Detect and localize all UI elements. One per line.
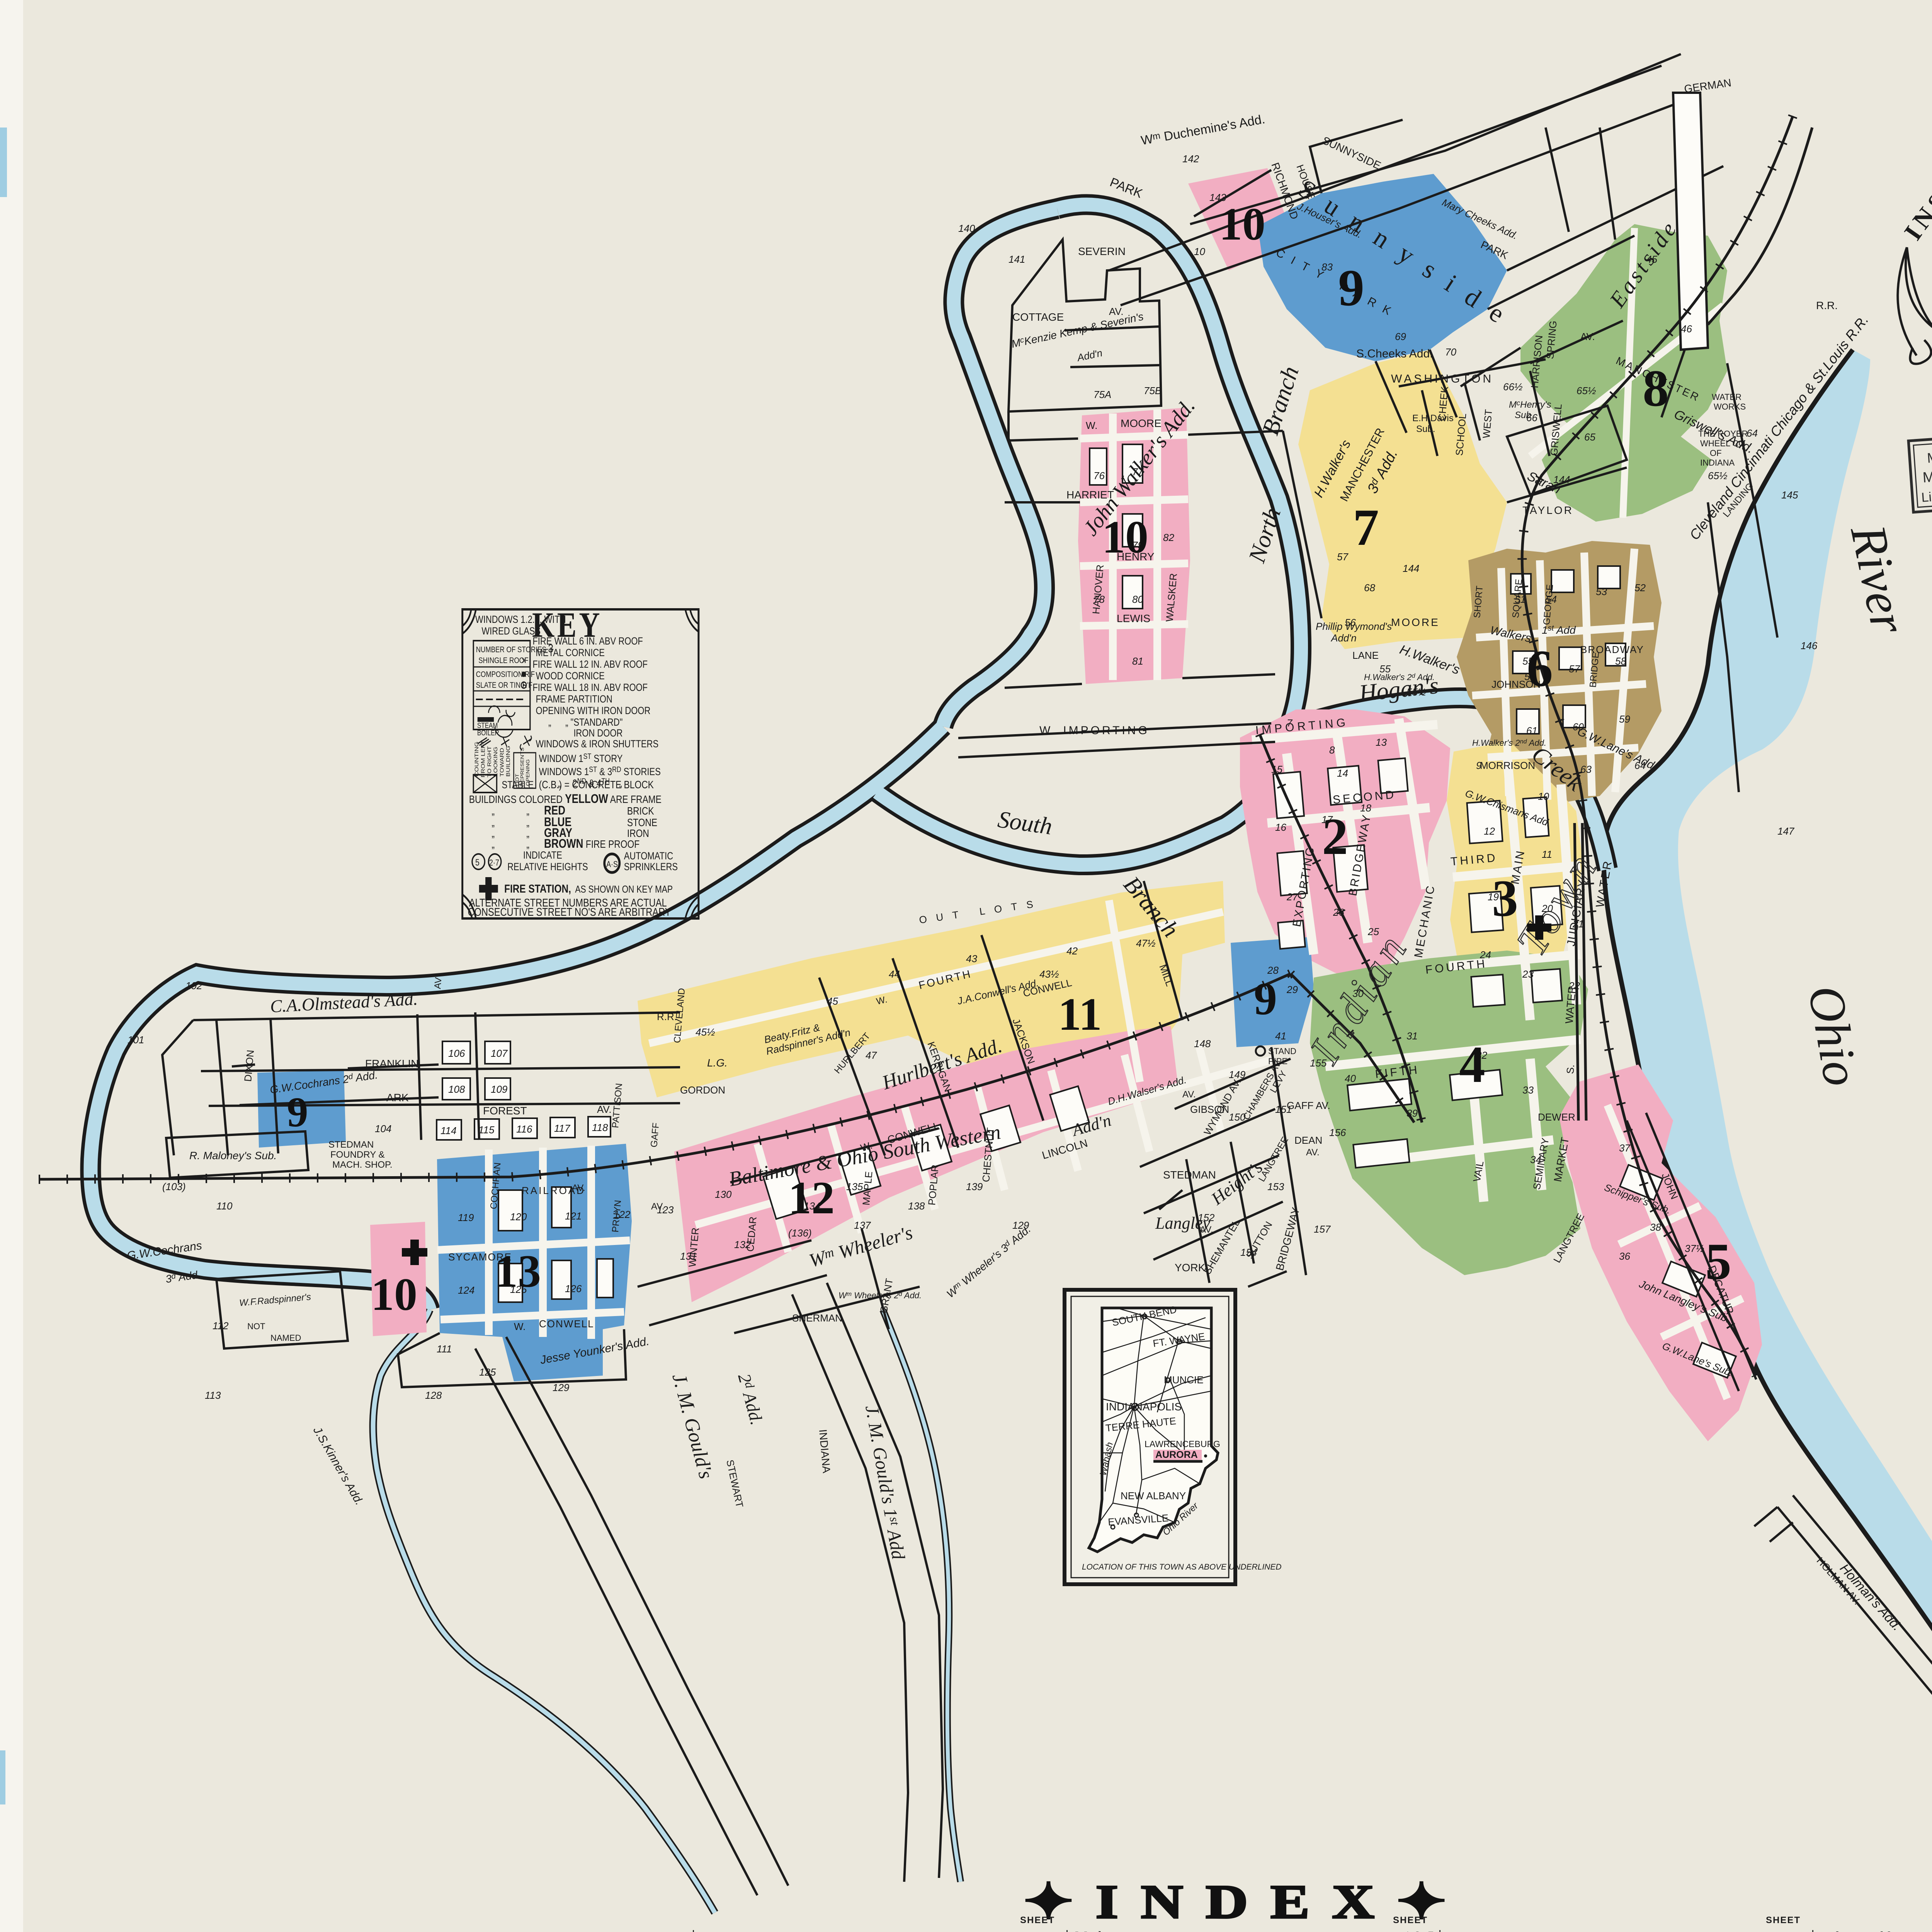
- svg-text:78: 78: [1094, 594, 1105, 605]
- svg-text:FIRE STATION,: FIRE STATION,: [504, 882, 571, 895]
- svg-text:65½: 65½: [1708, 470, 1728, 481]
- svg-text:THE ROYER: THE ROYER: [1698, 429, 1748, 439]
- svg-text:46: 46: [1681, 323, 1692, 335]
- svg-text:106: 106: [448, 1048, 465, 1059]
- svg-text:129: 129: [1012, 1219, 1029, 1231]
- svg-text:38: 38: [1650, 1221, 1661, 1233]
- svg-text:82: 82: [1163, 532, 1174, 543]
- svg-text:W.: W.: [514, 1321, 526, 1332]
- svg-text:43: 43: [966, 953, 977, 964]
- svg-text:AV: AV: [432, 977, 444, 989]
- svg-text:FIRE WALL 18 IN. ABV ROOF: FIRE WALL 18 IN. ABV ROOF: [532, 682, 648, 694]
- svg-text:75B: 75B: [1144, 385, 1162, 396]
- svg-text:AV.: AV.: [1200, 1225, 1213, 1235]
- svg-text:FROM LEFT: FROM LEFT: [480, 740, 486, 777]
- svg-text:1st Add: 1st Add: [1542, 624, 1576, 636]
- svg-text:BUILDING: BUILDING: [505, 746, 511, 777]
- svg-text:64: 64: [1634, 760, 1646, 771]
- svg-text:GIBSON: GIBSON: [1190, 1104, 1229, 1115]
- svg-text:INDIANAPOLIS: INDIANAPOLIS: [1106, 1401, 1182, 1413]
- svg-text:SEVERIN: SEVERIN: [1078, 245, 1126, 257]
- svg-text:WOOD CORNICE: WOOD CORNICE: [536, 670, 605, 682]
- svg-text:14: 14: [1337, 767, 1348, 779]
- svg-text:STAND: STAND: [1268, 1046, 1296, 1056]
- svg-text:60: 60: [1573, 721, 1584, 733]
- svg-text:141: 141: [1009, 253, 1025, 265]
- svg-text:AURORA: AURORA: [1155, 1449, 1198, 1460]
- svg-text:MOORE: MOORE: [1391, 616, 1440, 628]
- svg-text:FOUNDRY &: FOUNDRY &: [330, 1150, 384, 1160]
- svg-text:144: 144: [1403, 563, 1419, 574]
- svg-text:TOWARD: TOWARD: [499, 748, 505, 777]
- svg-text:23: 23: [1522, 968, 1534, 980]
- svg-text:STEDMAN: STEDMAN: [328, 1139, 374, 1150]
- svg-text:25: 25: [1367, 926, 1379, 937]
- svg-text:137: 137: [854, 1219, 871, 1231]
- svg-text:65: 65: [1584, 431, 1595, 443]
- svg-text:(C.B.) = CONCRETE BLOCK: (C.B.) = CONCRETE BLOCK: [539, 779, 654, 791]
- svg-text:TO RIGHT: TO RIGHT: [486, 746, 492, 777]
- svg-text:39: 39: [1406, 1107, 1418, 1119]
- svg-text:80: 80: [1132, 594, 1143, 605]
- svg-text:S.Cheeks Add.: S.Cheeks Add.: [1356, 347, 1433, 360]
- svg-text:142: 142: [1182, 153, 1199, 165]
- svg-text:MORRISON: MORRISON: [1480, 760, 1535, 771]
- svg-text:×: ×: [522, 655, 526, 667]
- svg-text:59: 59: [1619, 713, 1630, 725]
- svg-text:12: 12: [788, 1172, 835, 1223]
- svg-text:66½: 66½: [1503, 381, 1523, 393]
- svg-text:130: 130: [715, 1189, 732, 1200]
- svg-text:150: 150: [1229, 1111, 1246, 1123]
- svg-text:L.G.: L.G.: [707, 1057, 728, 1069]
- svg-text:132: 132: [734, 1239, 751, 1250]
- svg-text:52: 52: [1634, 582, 1646, 594]
- svg-text:7: 7: [1353, 499, 1379, 556]
- svg-text:W. IMPORTING: W. IMPORTING: [1039, 724, 1150, 737]
- svg-text:(136): (136): [788, 1227, 812, 1239]
- svg-text:13: 13: [495, 1245, 541, 1297]
- svg-text:125: 125: [479, 1366, 496, 1378]
- svg-text:MACH. SHOP.: MACH. SHOP.: [332, 1160, 393, 1170]
- svg-text:LOCATION OF THIS TOWN AS ABOVE: LOCATION OF THIS TOWN AS ABOVE UNDERLINE…: [1082, 1563, 1282, 1571]
- svg-text:53: 53: [1596, 586, 1607, 597]
- svg-text:101: 101: [128, 1034, 144, 1046]
- svg-text:WINDOWS 1.2.3. WITH: WINDOWS 1.2.3. WITH: [475, 614, 566, 626]
- svg-text:44: 44: [889, 968, 900, 980]
- svg-text:109: 109: [491, 1083, 507, 1095]
- svg-text:43½: 43½: [1039, 968, 1059, 980]
- svg-text:DEWER: DEWER: [1538, 1111, 1575, 1123]
- svg-text:41: 41: [1275, 1030, 1286, 1042]
- svg-text:OF: OF: [1710, 448, 1722, 458]
- svg-text:YORK: YORK: [1175, 1262, 1206, 1274]
- svg-text:WHEEL CO: WHEEL CO: [1700, 439, 1745, 448]
- svg-text:66: 66: [1526, 412, 1537, 423]
- svg-text:54: 54: [1546, 594, 1557, 605]
- svg-text:40: 40: [1345, 1073, 1356, 1084]
- svg-text:75A: 75A: [1094, 389, 1111, 400]
- svg-text:34: 34: [1530, 1154, 1541, 1165]
- svg-text:157: 157: [1314, 1223, 1331, 1235]
- svg-text:AV.: AV.: [1182, 1089, 1196, 1100]
- svg-text:57: 57: [1569, 663, 1580, 675]
- svg-text:135: 135: [846, 1181, 863, 1192]
- svg-text:153: 153: [1267, 1181, 1284, 1192]
- svg-text:68: 68: [1364, 582, 1375, 594]
- svg-text:ARK: ARK: [386, 1092, 409, 1104]
- svg-text:131: 131: [680, 1250, 697, 1262]
- svg-text:5: 5: [475, 857, 480, 867]
- svg-text:FRAME PARTITION: FRAME PARTITION: [536, 694, 612, 705]
- svg-text:116: 116: [516, 1123, 532, 1135]
- svg-text:10: 10: [1102, 511, 1148, 563]
- svg-text:Sub.: Sub.: [1416, 424, 1435, 434]
- svg-text:156: 156: [1329, 1127, 1346, 1138]
- svg-text:112: 112: [213, 1320, 229, 1332]
- svg-text:114: 114: [440, 1125, 456, 1136]
- svg-text:140: 140: [958, 223, 975, 234]
- svg-text:9: 9: [1476, 760, 1481, 771]
- svg-text:SHINGLE ROOF: SHINGLE ROOF: [478, 656, 528, 665]
- svg-text:57: 57: [1337, 551, 1349, 563]
- svg-text:„ „ "STANDARD": „ „ "STANDARD": [548, 717, 622, 728]
- svg-text:81: 81: [1132, 655, 1143, 667]
- svg-text:69: 69: [1395, 331, 1406, 342]
- svg-text:WORKS: WORKS: [1714, 402, 1746, 412]
- svg-text:151: 151: [1275, 1104, 1292, 1115]
- svg-text:29: 29: [1286, 984, 1298, 995]
- svg-text:122: 122: [614, 1209, 631, 1220]
- svg-text:LEWIS: LEWIS: [1117, 612, 1150, 624]
- svg-text:76: 76: [1094, 470, 1105, 481]
- svg-text:37½: 37½: [1685, 1243, 1704, 1254]
- svg-text:9: 9: [1254, 973, 1277, 1024]
- svg-text:BRICK: BRICK: [627, 805, 654, 817]
- svg-text:13: 13: [1376, 736, 1387, 748]
- svg-text:27: 27: [1286, 891, 1298, 903]
- svg-text:GAFF AV.: GAFF AV.: [1287, 1100, 1330, 1111]
- svg-text:FOREST: FOREST: [483, 1105, 527, 1117]
- svg-text:154: 154: [1240, 1247, 1257, 1258]
- svg-text:2·7: 2·7: [489, 858, 499, 867]
- svg-text:65½: 65½: [1577, 385, 1596, 396]
- svg-text:SHERMAN: SHERMAN: [792, 1312, 842, 1324]
- svg-text:12: 12: [1484, 825, 1495, 837]
- svg-text:9: 9: [287, 1088, 308, 1136]
- svg-text:8: 8: [1329, 744, 1335, 756]
- svg-text:149: 149: [1229, 1069, 1245, 1080]
- svg-text:R.R.: R.R.: [1816, 299, 1838, 311]
- svg-text:119: 119: [458, 1212, 474, 1223]
- svg-text:10: 10: [1219, 198, 1265, 250]
- svg-text:124: 124: [458, 1284, 474, 1296]
- svg-text:24: 24: [1480, 949, 1491, 961]
- svg-text:H.Walker's 2nd Add.: H.Walker's 2nd Add.: [1472, 738, 1546, 748]
- svg-text:SPRINKLERS: SPRINKLERS: [624, 861, 678, 873]
- svg-text:47½: 47½: [1136, 937, 1156, 949]
- svg-text:45: 45: [827, 995, 838, 1007]
- svg-text:PIPE: PIPE: [1268, 1056, 1287, 1066]
- svg-text:42: 42: [1066, 945, 1078, 957]
- svg-text:145: 145: [1781, 489, 1798, 501]
- svg-text:(103): (103): [162, 1181, 186, 1192]
- svg-text:139: 139: [966, 1181, 983, 1192]
- svg-text:GORDON: GORDON: [680, 1084, 725, 1096]
- svg-text:113: 113: [205, 1389, 221, 1401]
- svg-text:3: 3: [1492, 870, 1518, 927]
- svg-text:117: 117: [554, 1122, 571, 1134]
- svg-text:H.Walker's 2d Add.: H.Walker's 2d Add.: [1364, 672, 1435, 682]
- svg-text:9: 9: [1338, 259, 1364, 317]
- svg-text:CONWELL: CONWELL: [539, 1318, 594, 1330]
- svg-text:AS SHOWN ON KEY MAP: AS SHOWN ON KEY MAP: [575, 884, 673, 895]
- svg-text:AUTOMATIC: AUTOMATIC: [624, 850, 673, 862]
- svg-text:8: 8: [1643, 360, 1669, 417]
- svg-text:123: 123: [657, 1204, 674, 1216]
- svg-text:A·S: A·S: [606, 860, 618, 869]
- svg-text:CONSECUTIVE STREET NO'S ARE AR: CONSECUTIVE STREET NO'S ARE ARBITRARY: [468, 906, 671, 918]
- svg-text:4: 4: [1459, 1036, 1485, 1094]
- svg-text:AV.: AV.: [572, 1183, 585, 1193]
- svg-text:S.: S.: [1564, 1064, 1577, 1074]
- svg-text:IRON DOOR: IRON DOOR: [573, 728, 622, 739]
- svg-text:5: 5: [1705, 1233, 1731, 1291]
- svg-text:10: 10: [371, 1269, 417, 1320]
- svg-text:7: 7: [1287, 717, 1293, 729]
- svg-text:51: 51: [1515, 594, 1526, 605]
- svg-text:10: 10: [1538, 791, 1549, 802]
- svg-text:20: 20: [1541, 903, 1553, 914]
- svg-text:NOT: NOT: [247, 1321, 265, 1331]
- svg-text:STONE: STONE: [627, 817, 657, 829]
- svg-text:111: 111: [437, 1343, 452, 1355]
- svg-text:NEW ALBANY: NEW ALBANY: [1121, 1490, 1186, 1502]
- svg-text:47: 47: [866, 1049, 877, 1061]
- svg-text:45: 45: [1646, 253, 1657, 265]
- svg-text:126: 126: [565, 1283, 582, 1294]
- svg-text:70: 70: [1445, 346, 1456, 358]
- svg-text:61: 61: [1526, 725, 1537, 736]
- svg-text:26: 26: [1333, 906, 1344, 918]
- svg-text:WASHINGTON: WASHINGTON: [1391, 372, 1493, 385]
- svg-text:83: 83: [1321, 261, 1333, 273]
- svg-text:AV.: AV.: [597, 1104, 612, 1115]
- svg-text:104: 104: [375, 1123, 391, 1134]
- svg-text:110: 110: [216, 1200, 233, 1212]
- svg-text:NAMED: NAMED: [270, 1333, 301, 1343]
- svg-text:„ „ BROWN FIR: „ „ BROWN FIRE PROOF: [492, 837, 639, 851]
- svg-text:WINDOW 1ST STORY: WINDOW 1ST STORY: [539, 752, 623, 764]
- svg-text:2: 2: [1322, 808, 1348, 866]
- svg-text:33: 33: [1522, 1084, 1534, 1096]
- svg-text:56: 56: [1345, 617, 1356, 628]
- svg-text:31: 31: [1406, 1030, 1418, 1042]
- svg-text:77: 77: [1132, 466, 1144, 478]
- svg-text:138: 138: [908, 1200, 925, 1212]
- svg-text:DEAN: DEAN: [1294, 1134, 1322, 1146]
- svg-text:120: 120: [510, 1211, 527, 1223]
- svg-text:30: 30: [1352, 988, 1364, 999]
- svg-text:37: 37: [1619, 1142, 1631, 1154]
- svg-text:16: 16: [1275, 821, 1286, 833]
- svg-text:63: 63: [1580, 764, 1592, 775]
- svg-text:11: 11: [1058, 988, 1102, 1040]
- svg-text:INDIANA: INDIANA: [1700, 458, 1735, 468]
- svg-text:INDICATE: INDICATE: [523, 850, 562, 861]
- svg-text:147: 147: [1777, 825, 1795, 837]
- svg-text:55: 55: [1379, 663, 1391, 675]
- svg-text:108: 108: [448, 1083, 465, 1095]
- svg-text:LOOKING: LOOKING: [493, 747, 498, 777]
- svg-text:FIRE WALL 12 IN. ABV ROOF: FIRE WALL 12 IN. ABV ROOF: [532, 659, 648, 670]
- svg-text:LAWRENCEBURG: LAWRENCEBURG: [1145, 1439, 1220, 1449]
- svg-text:AV.: AV.: [1580, 331, 1595, 342]
- svg-text:WINDOWS 1ST & 3RD STORIES: WINDOWS 1ST & 3RD STORIES: [539, 765, 661, 777]
- svg-text:155: 155: [1310, 1057, 1327, 1069]
- svg-text:Add'n: Add'n: [1330, 632, 1357, 644]
- svg-text:118: 118: [592, 1122, 608, 1133]
- svg-text:102: 102: [185, 980, 202, 992]
- svg-text:21: 21: [1572, 918, 1584, 930]
- svg-text:STABLE: STABLE: [502, 779, 534, 791]
- svg-text:128: 128: [425, 1389, 442, 1401]
- svg-text:129: 129: [553, 1382, 569, 1393]
- svg-text:FRANKLIN: FRANKLIN: [365, 1058, 418, 1070]
- svg-text:107: 107: [491, 1048, 508, 1059]
- svg-text:45½: 45½: [696, 1026, 715, 1038]
- svg-text:58: 58: [1615, 655, 1626, 667]
- svg-text:BROADWAY: BROADWAY: [1580, 644, 1644, 655]
- svg-text:55½: 55½: [1406, 686, 1426, 698]
- svg-text:64: 64: [1747, 427, 1758, 439]
- svg-text:COMPOSITION R'F: COMPOSITION R'F: [476, 670, 535, 679]
- svg-text:WIRED GLASS: WIRED GLASS: [481, 626, 541, 637]
- svg-text:OPENING WITH IRON DOOR: OPENING WITH IRON DOOR: [536, 705, 651, 717]
- svg-text:10: 10: [1194, 246, 1205, 257]
- svg-text:RELATIVE HEIGHTS: RELATIVE HEIGHTS: [507, 861, 588, 873]
- svg-text:IRON: IRON: [627, 828, 649, 840]
- svg-text:McHenry's: McHenry's: [1509, 399, 1551, 410]
- svg-text:36: 36: [1619, 1250, 1630, 1262]
- svg-text:152: 152: [1198, 1212, 1215, 1223]
- svg-text:146: 146: [1801, 640, 1818, 651]
- svg-text:115: 115: [478, 1124, 495, 1136]
- svg-text:18: 18: [1360, 802, 1371, 814]
- svg-text:LANE: LANE: [1352, 650, 1379, 661]
- svg-text:121: 121: [565, 1210, 582, 1222]
- svg-text:COUNTING: COUNTING: [474, 742, 480, 777]
- svg-text:STEDMAN: STEDMAN: [1163, 1169, 1216, 1181]
- svg-text:R. Maloney's Sub.: R. Maloney's Sub.: [189, 1150, 277, 1162]
- svg-text:AV.: AV.: [1306, 1147, 1320, 1158]
- svg-text:GAFF: GAFF: [649, 1122, 661, 1148]
- svg-text:TAYLOR: TAYLOR: [1522, 504, 1573, 516]
- svg-text:W.: W.: [1086, 420, 1097, 431]
- svg-text:148: 148: [1194, 1038, 1211, 1049]
- svg-text:COTTAGE: COTTAGE: [1012, 311, 1064, 323]
- svg-text:WINDOWS & IRON SHUTTERS: WINDOWS & IRON SHUTTERS: [536, 738, 659, 750]
- svg-text:15: 15: [1271, 764, 1282, 775]
- svg-text:6: 6: [1527, 640, 1553, 697]
- svg-text:11: 11: [1542, 849, 1552, 860]
- svg-text:WATER: WATER: [1712, 392, 1742, 402]
- svg-text:144: 144: [1553, 474, 1570, 485]
